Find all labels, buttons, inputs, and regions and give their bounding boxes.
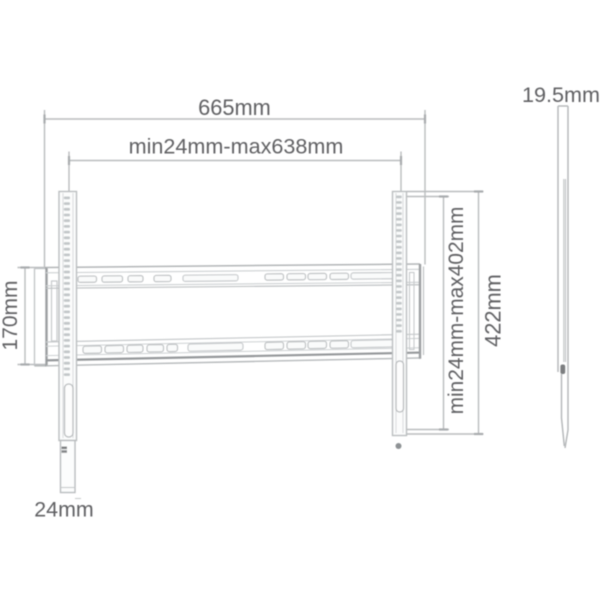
svg-text:min24mm-max402mm: min24mm-max402mm [445, 207, 468, 415]
svg-text:min24mm-max638mm: min24mm-max638mm [129, 134, 344, 159]
svg-text:170mm: 170mm [0, 280, 22, 350]
svg-text:665mm: 665mm [198, 95, 271, 120]
svg-text:19.5mm: 19.5mm [522, 82, 600, 107]
svg-text:24mm: 24mm [34, 498, 93, 522]
svg-text:422mm: 422mm [481, 274, 506, 347]
